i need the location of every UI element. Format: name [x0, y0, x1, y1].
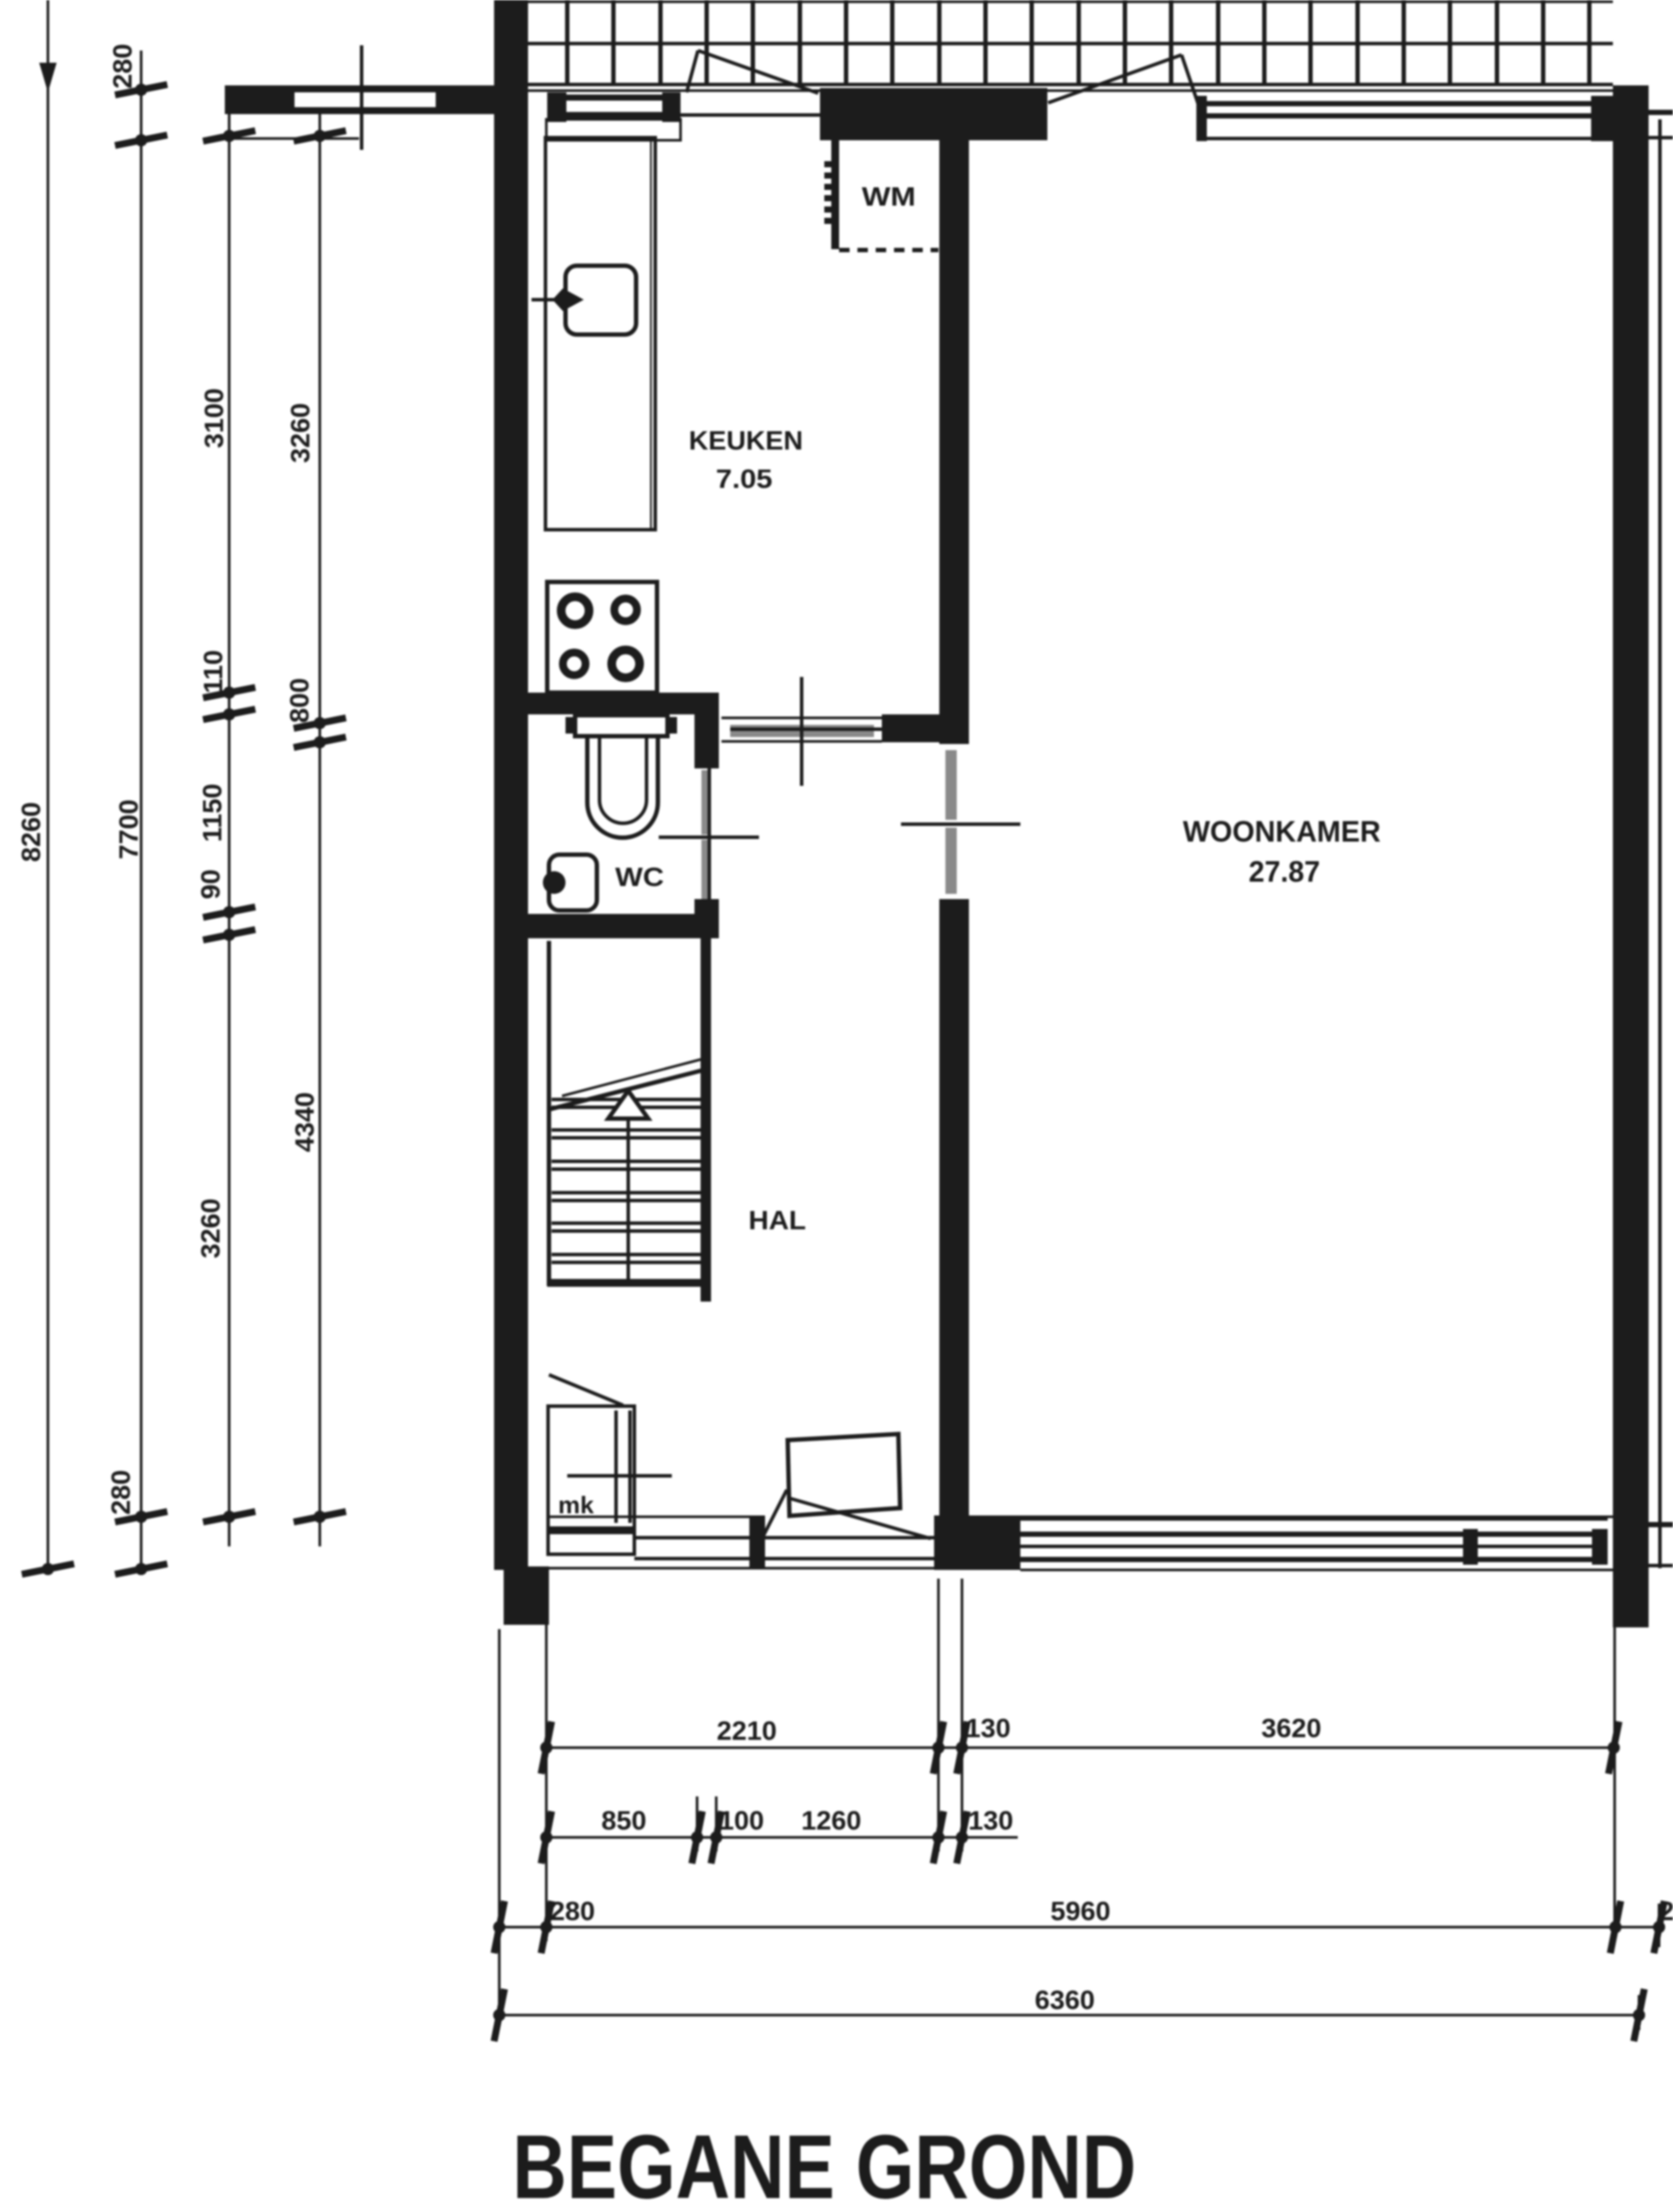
- svg-text:1150: 1150: [197, 783, 227, 842]
- svg-text:130: 130: [965, 1713, 1011, 1743]
- svg-text:7.05: 7.05: [716, 463, 773, 494]
- svg-text:280: 280: [1659, 1896, 1673, 1926]
- svg-text:7700: 7700: [113, 800, 144, 860]
- svg-text:4340: 4340: [289, 1092, 320, 1153]
- svg-text:800: 800: [284, 678, 315, 723]
- svg-text:90: 90: [195, 869, 226, 899]
- svg-text:WOONKAMER: WOONKAMER: [1183, 815, 1381, 849]
- svg-text:110: 110: [198, 650, 228, 693]
- svg-text:5960: 5960: [1051, 1896, 1111, 1926]
- svg-text:WM: WM: [862, 181, 916, 212]
- svg-text:3260: 3260: [195, 1199, 226, 1259]
- svg-text:HAL: HAL: [748, 1205, 806, 1235]
- svg-text:27.87: 27.87: [1249, 856, 1320, 889]
- svg-text:3260: 3260: [285, 403, 315, 463]
- svg-text:850: 850: [601, 1805, 647, 1836]
- svg-text:100: 100: [719, 1805, 764, 1836]
- svg-text:6360: 6360: [1035, 1985, 1095, 2015]
- svg-text:3620: 3620: [1262, 1713, 1322, 1743]
- svg-text:130: 130: [968, 1805, 1013, 1836]
- svg-text:280: 280: [550, 1896, 595, 1926]
- svg-text:mk: mk: [559, 1492, 594, 1519]
- svg-text:1260: 1260: [802, 1805, 862, 1836]
- svg-text:2210: 2210: [717, 1715, 777, 1746]
- svg-text:8260: 8260: [16, 802, 46, 862]
- svg-text:WC: WC: [615, 862, 664, 892]
- svg-text:3100: 3100: [199, 389, 229, 449]
- svg-text:280: 280: [105, 1470, 136, 1515]
- svg-text:280: 280: [107, 44, 138, 89]
- svg-text:BEGANE GROND: BEGANE GROND: [512, 2117, 1136, 2212]
- svg-text:KEUKEN: KEUKEN: [689, 425, 803, 456]
